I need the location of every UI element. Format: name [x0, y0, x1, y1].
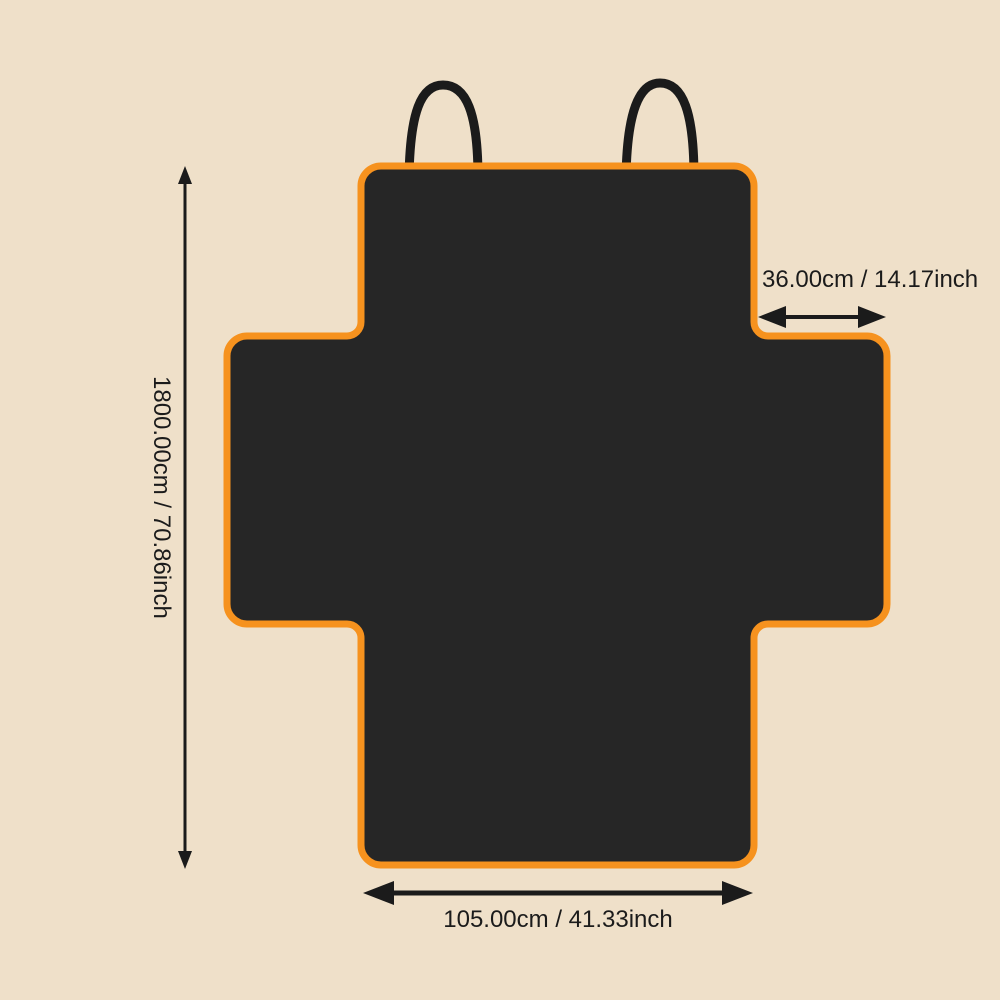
height-dimension-label: 1800.00cm / 70.86inch	[146, 376, 175, 619]
side-width-dimension-label: 36.00cm / 14.17inch	[762, 266, 978, 295]
product-dimension-diagram: 1800.00cm / 70.86inch 36.00cm / 14.17inc…	[0, 0, 1000, 1000]
side-width-dimension-arrow	[758, 306, 886, 328]
bottom-width-dimension-label: 105.00cm / 41.33inch	[368, 906, 748, 935]
height-dimension-arrow	[178, 166, 192, 869]
bottom-width-dimension-arrow	[363, 881, 753, 905]
